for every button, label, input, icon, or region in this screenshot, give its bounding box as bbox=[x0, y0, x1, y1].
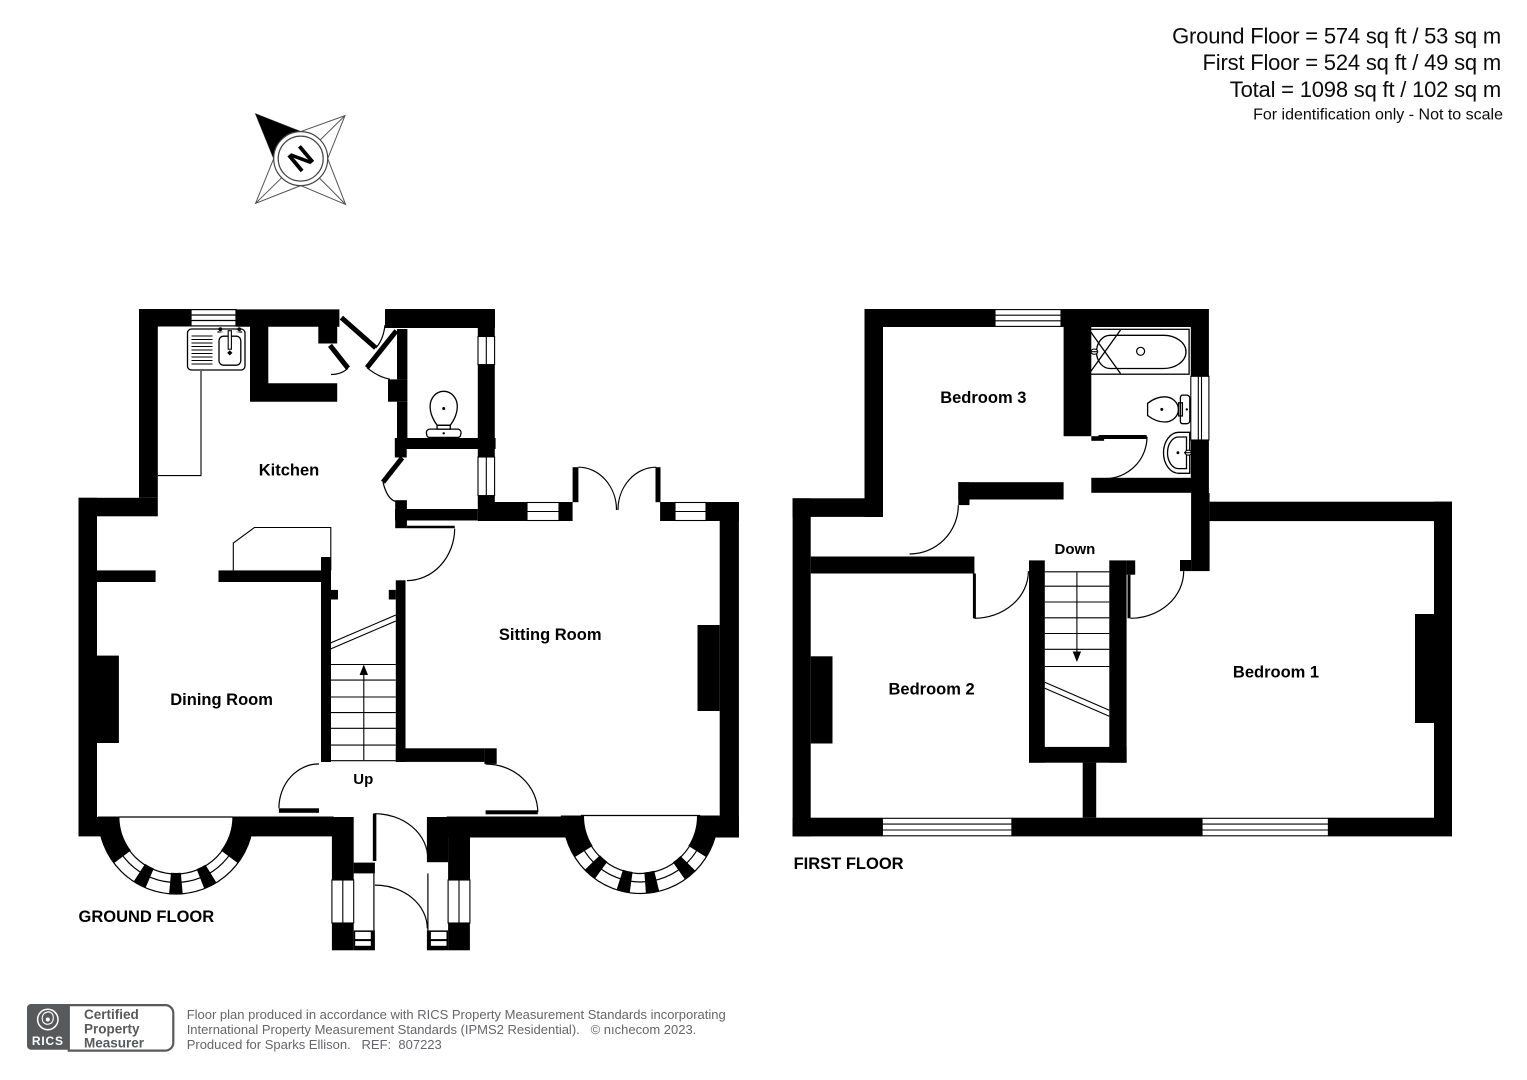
svg-text:FIRST FLOOR: FIRST FLOOR bbox=[794, 855, 904, 873]
svg-text:Certified: Certified bbox=[84, 1007, 139, 1022]
svg-text:Produced for Sparks Ellison.: Produced for Sparks Ellison. REF: 807223 bbox=[187, 1037, 442, 1052]
svg-text:Ground Floor = 574 sq ft / 53: Ground Floor = 574 sq ft / 53 sq m bbox=[1172, 24, 1501, 49]
svg-text:International Property Measure: International Property Measurement Stand… bbox=[187, 1022, 697, 1037]
svg-text:Bedroom 3: Bedroom 3 bbox=[940, 389, 1026, 407]
svg-text:RICS: RICS bbox=[32, 1034, 64, 1048]
svg-text:Floor plan produced in accorda: Floor plan produced in accordance with R… bbox=[187, 1007, 726, 1022]
svg-text:Sitting Room: Sitting Room bbox=[499, 626, 602, 644]
svg-text:First Floor = 524 sq ft / 49 s: First Floor = 524 sq ft / 49 sq m bbox=[1203, 50, 1501, 75]
svg-text:Measurer: Measurer bbox=[84, 1036, 145, 1051]
svg-text:Bedroom 1: Bedroom 1 bbox=[1233, 664, 1319, 682]
svg-text:Total = 1098 sq ft / 102 sq m: Total = 1098 sq ft / 102 sq m bbox=[1230, 77, 1501, 102]
svg-text:Property: Property bbox=[84, 1021, 140, 1036]
svg-text:Up: Up bbox=[353, 771, 373, 788]
svg-text:Kitchen: Kitchen bbox=[259, 462, 320, 480]
svg-text:Dining Room: Dining Room bbox=[170, 691, 273, 709]
svg-text:Down: Down bbox=[1054, 541, 1095, 558]
svg-text:Bedroom 2: Bedroom 2 bbox=[889, 681, 975, 699]
svg-text:GROUND FLOOR: GROUND FLOOR bbox=[79, 908, 215, 926]
svg-text:For identification only - Not: For identification only - Not to scale bbox=[1253, 107, 1503, 124]
